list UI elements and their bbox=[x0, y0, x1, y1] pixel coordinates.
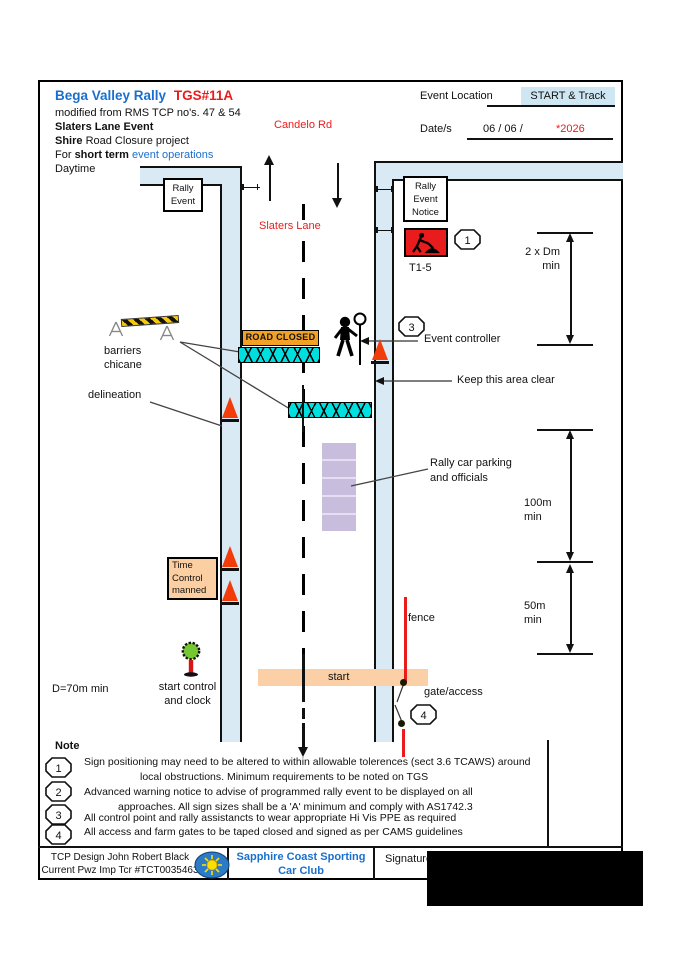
northbound-arrowhead-icon bbox=[264, 155, 274, 165]
note-text: All control point and rally assistancts … bbox=[84, 812, 456, 824]
right-verge bbox=[376, 163, 392, 742]
tcp-drawing-page: Bega Valley Rally TGS#11A modified from … bbox=[0, 0, 675, 953]
chicane-label: chicane bbox=[104, 359, 142, 372]
header-for-line: For short term event operations bbox=[55, 149, 213, 162]
notes-heading: Note bbox=[55, 740, 79, 753]
page-title: Bega Valley Rally TGS#11A bbox=[55, 88, 233, 104]
exit-arrow bbox=[302, 723, 305, 749]
dim-dm-label: 2 x Dm bbox=[498, 246, 560, 259]
start-clock-icon bbox=[180, 640, 202, 680]
footer-separator bbox=[38, 846, 623, 848]
club-name-2: Car Club bbox=[229, 865, 373, 878]
note-text: local obstructions. Minimum requirements… bbox=[140, 771, 428, 783]
page-title-tgs: TGS#11A bbox=[174, 88, 233, 103]
dim-50m-label-2: min bbox=[524, 614, 542, 627]
rally-event-sign: Rally Event bbox=[163, 178, 203, 212]
note-text: All access and farm gates to be taped cl… bbox=[84, 826, 463, 838]
date-label: Date/s bbox=[420, 123, 452, 136]
right-verge-east-edge bbox=[392, 179, 394, 742]
worker-icon bbox=[406, 231, 445, 255]
fence-line bbox=[404, 597, 407, 683]
centre-line-dash bbox=[302, 708, 305, 719]
dim-dm-label-2: min bbox=[498, 260, 560, 273]
club-logo bbox=[194, 851, 230, 879]
event-operations-link[interactable]: event operations bbox=[129, 149, 213, 161]
note-badge-2: 2 bbox=[45, 781, 72, 802]
svg-text:3: 3 bbox=[408, 322, 414, 334]
event-controller-label: Event controller bbox=[424, 333, 500, 346]
dim-tick bbox=[537, 344, 593, 346]
left-verge-west-edge bbox=[220, 184, 222, 742]
note-text: Sign positioning may need to be altered … bbox=[84, 756, 531, 768]
start-control-label-2: and clock bbox=[140, 695, 235, 708]
note-badge-3: 3 bbox=[45, 804, 72, 825]
dim-50m-label: 50m bbox=[524, 600, 545, 613]
traffic-cone-icon bbox=[221, 397, 239, 422]
date-underline bbox=[467, 138, 613, 140]
parking-label: Rally car parking bbox=[430, 457, 512, 470]
dim-100m-label-2: min bbox=[524, 511, 542, 524]
page-title-event: Bega Valley Rally bbox=[55, 88, 166, 103]
svg-text:4: 4 bbox=[55, 830, 61, 842]
fence-line-lower bbox=[402, 729, 405, 757]
start-line bbox=[302, 654, 305, 702]
event-location-label: Event Location bbox=[420, 90, 493, 103]
dim-tick bbox=[537, 429, 593, 431]
rally-event-notice-sign: Rally Event Notice bbox=[403, 176, 448, 222]
right-verge-west-edge bbox=[374, 163, 376, 742]
delineation-label: delineation bbox=[88, 389, 141, 402]
signature-label: Signature bbox=[385, 853, 432, 866]
barriers-label: barriers bbox=[104, 345, 141, 358]
traffic-cone-icon bbox=[371, 339, 389, 364]
footer-divider bbox=[373, 848, 375, 880]
start-label: start bbox=[328, 671, 349, 684]
traffic-cone-icon bbox=[221, 580, 239, 605]
trestle-icon bbox=[158, 324, 176, 342]
dim-dm-arrow bbox=[570, 240, 572, 340]
d70-label: D=70m min bbox=[52, 683, 109, 696]
northbound-arrow bbox=[269, 163, 271, 201]
svg-text:1: 1 bbox=[55, 763, 61, 775]
dim-arrowhead-icon bbox=[566, 430, 574, 439]
left-verge bbox=[222, 168, 240, 742]
dim-100m-label: 100m bbox=[524, 497, 552, 510]
tcp-ticket-number: Current Pwz Imp Tcr #TCT0035463 bbox=[40, 864, 200, 877]
dim-tick bbox=[537, 653, 593, 655]
southbound-arrow bbox=[337, 163, 339, 200]
signature-redaction-box bbox=[427, 851, 643, 906]
header-modified-from: modified from RMS TCP no's. 47 & 54 bbox=[55, 107, 241, 120]
road-closed-sign: ROAD CLOSED bbox=[242, 330, 319, 346]
callout-1: 1 bbox=[454, 229, 481, 250]
barrier-line-2 bbox=[288, 402, 372, 418]
gate-hinge-icon bbox=[398, 720, 405, 727]
sign-post-marker-icon bbox=[374, 186, 394, 192]
header-shire-line: Shire Road Closure project bbox=[55, 135, 189, 148]
callout-3: 3 bbox=[398, 316, 425, 337]
svg-text:2: 2 bbox=[55, 787, 61, 799]
main-road-label: Slaters Lane bbox=[257, 220, 323, 233]
date-value[interactable]: 06 / 06 / bbox=[483, 123, 523, 136]
parking-label-2: and officials bbox=[430, 472, 488, 485]
rally-parking-area bbox=[322, 443, 356, 531]
dim-arrowhead-icon bbox=[566, 644, 574, 653]
dim-50m-arrow bbox=[570, 570, 572, 647]
dim-tick bbox=[537, 561, 593, 563]
t15-roadworks-sign bbox=[404, 228, 448, 257]
top-road-label: Candelo Rd bbox=[274, 119, 332, 132]
header-event-name: Slaters Lane Event bbox=[55, 121, 153, 134]
gate-access-label: gate/access bbox=[424, 686, 483, 699]
dim-tick bbox=[537, 232, 593, 234]
fence-label: fence bbox=[408, 612, 435, 625]
keep-clear-label: Keep this area clear bbox=[457, 374, 555, 387]
svg-text:4: 4 bbox=[420, 710, 426, 722]
dim-100m-arrow bbox=[570, 437, 572, 555]
sign-post-marker-icon bbox=[374, 227, 394, 233]
barrier-line-1 bbox=[238, 347, 320, 363]
time-control-sign: Time Control manned bbox=[167, 557, 218, 600]
centre-line-through-barrier bbox=[302, 385, 304, 432]
dim-arrowhead-icon bbox=[566, 564, 574, 573]
club-name: Sapphire Coast Sporting bbox=[229, 851, 373, 864]
t15-label: T1-5 bbox=[409, 262, 432, 275]
svg-text:3: 3 bbox=[55, 810, 61, 822]
dim-arrowhead-icon bbox=[566, 552, 574, 561]
event-location-underline bbox=[487, 105, 615, 107]
event-location-value[interactable]: START & Track bbox=[521, 87, 615, 105]
traffic-cone-icon bbox=[221, 546, 239, 571]
date-year[interactable]: *2026 bbox=[556, 123, 585, 136]
right-verge-outer-edge bbox=[374, 161, 623, 163]
note-badge-4: 4 bbox=[45, 824, 72, 845]
start-control-label: start control bbox=[140, 681, 235, 694]
note-text: Advanced warning notice to advise of pro… bbox=[84, 786, 473, 798]
sign-post-marker-icon bbox=[240, 184, 260, 190]
southbound-arrowhead-icon bbox=[332, 198, 342, 208]
svg-text:1: 1 bbox=[464, 235, 470, 247]
left-verge-east-edge bbox=[240, 166, 242, 742]
event-controller-figure bbox=[334, 311, 368, 367]
gate-hinge-icon bbox=[400, 679, 407, 686]
callout-4: 4 bbox=[410, 704, 437, 725]
tcp-designer: TCP Design John Robert Black bbox=[40, 851, 200, 864]
header-daytime: Daytime bbox=[55, 163, 95, 176]
note-badge-1: 1 bbox=[45, 757, 72, 778]
dim-arrowhead-icon bbox=[566, 335, 574, 344]
dim-arrowhead-icon bbox=[566, 233, 574, 242]
notes-box-edge bbox=[547, 740, 549, 846]
